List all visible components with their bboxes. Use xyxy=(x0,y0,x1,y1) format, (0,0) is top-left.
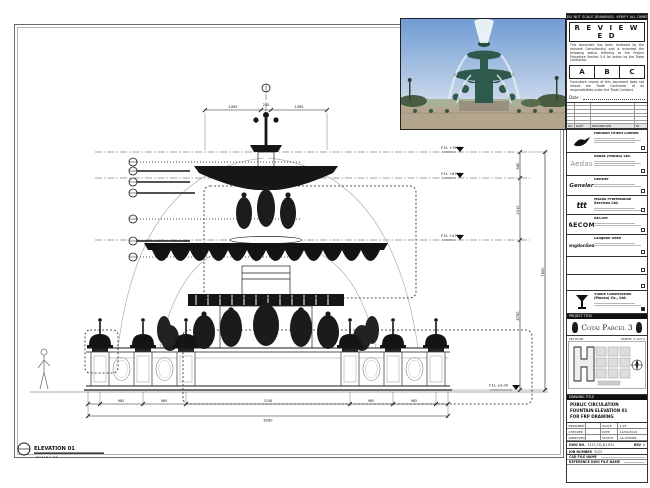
drawing-title-line3: FOR FRP DRAWING xyxy=(570,414,644,420)
consultant-address xyxy=(594,138,645,143)
dim-top-right: 1495 xyxy=(294,105,303,109)
revision-table: NO. DATE DESCRIPTION BY xyxy=(567,103,647,131)
level-7600: F.F.L +7600 xyxy=(441,146,461,150)
consultant-name: Gensler xyxy=(594,178,645,182)
rev-col-date: DATE xyxy=(575,124,591,128)
fountain-photo xyxy=(400,18,566,130)
status-label: STATUS xyxy=(601,435,619,441)
level-4750: F.F.L +4750 xyxy=(441,234,461,238)
approved-value: - xyxy=(586,435,600,441)
contractor-name: Yiukie Construction (Macau) Co., Ltd. xyxy=(594,293,645,301)
rev-col-no: NO. xyxy=(567,124,575,128)
dim-top-left: 1495 xyxy=(228,105,237,109)
aedas-logo: Aedas xyxy=(569,155,594,173)
consultant-box-langdon: LangdonSeah Langdon Seah xyxy=(567,235,647,257)
approval-checkbox[interactable] xyxy=(641,284,645,288)
consultant-address xyxy=(594,184,645,187)
consultant-name: AECOM xyxy=(594,217,645,221)
title-block: DO NOT SCALE DRAWINGS. VERIFY ALL DIMENS… xyxy=(566,13,648,483)
contractor-address xyxy=(594,303,645,306)
level-zero: F.F.L ±0.00 xyxy=(489,384,508,388)
grade-c-cell[interactable]: C xyxy=(620,66,644,78)
consultant-box-aedas: Aedas Aedas (Macau) Ltd. xyxy=(567,153,647,176)
reference-dwg-row: REFERENCE DWG FILE NAME xyxy=(567,460,647,465)
approval-checkbox[interactable] xyxy=(641,169,645,173)
job-number-label: JOB NUMBER xyxy=(569,450,592,454)
aecom-logo: AECOM xyxy=(569,217,594,232)
elevation-scale-note: SCALE 1:25 xyxy=(36,455,58,458)
level-6760: F.F.L +6760 xyxy=(441,172,461,176)
approval-checkbox[interactable] xyxy=(641,307,645,311)
elevation-label: ELEVATION 01 xyxy=(34,446,75,452)
consultant-box-gensler: Gensler Gensler xyxy=(567,176,647,196)
dim-bottom-2: 985 xyxy=(161,399,167,403)
fountain-structure xyxy=(144,112,388,351)
dim-right-3: 4750 xyxy=(516,311,520,321)
right-dimensions: 840 2010 4750 7600 xyxy=(452,150,548,392)
rev-col-desc: DESCRIPTION xyxy=(591,124,635,128)
elevation-title: ELEVATION 01 SCALE 1:25 xyxy=(18,443,104,458)
level-lines xyxy=(95,152,530,240)
dim-top-center: 240 xyxy=(263,103,271,107)
approval-checkbox[interactable] xyxy=(641,228,645,232)
dim-right-total: 7600 xyxy=(541,267,545,277)
drawing-sheet: 1495 240 1495 840 2010 4750 7600 F.F.L +… xyxy=(0,0,650,488)
review-grade-row: A B C xyxy=(569,65,645,79)
status-value: AS SHOWN xyxy=(618,435,647,441)
contractor-box-yiukie: Yiukie Construction (Macau) Co., Ltd. xyxy=(567,291,647,314)
reference-dwg-value-bar xyxy=(624,462,645,463)
project-title-banner: Cotai Parcel 3 xyxy=(567,319,647,336)
approval-table: DESIGNED - SCALE 1:25 CHECKED - DATE 12/… xyxy=(567,423,647,442)
review-stamp-title: R E V I E W E D xyxy=(569,22,645,42)
approval-checkbox[interactable] xyxy=(641,250,645,254)
consultant-box-empty-2 xyxy=(567,275,647,291)
consultant-name: Macau Professional Services Ltd. xyxy=(594,198,645,206)
key-plan: KEY PLAN PARCEL 3, LOT 2 xyxy=(567,336,647,395)
key-plan-map xyxy=(568,341,646,389)
mps-logo: ttt xyxy=(569,198,594,212)
consultant-box-empty-1 xyxy=(567,257,647,275)
approval-checkbox[interactable] xyxy=(641,268,645,272)
stamp-date-row: Date : xyxy=(569,95,645,100)
consultant-name: Aedas (Macau) Ltd. xyxy=(594,155,645,159)
human-scale-figure xyxy=(38,349,50,389)
bottom-dimensions: 985 985 3740 985 985 8280 xyxy=(86,392,450,423)
consultant-address xyxy=(594,208,645,211)
dim-right-2: 2010 xyxy=(516,205,520,215)
left-emblem-icon xyxy=(572,322,578,333)
review-stamp-body2: Consultant review of this document does … xyxy=(570,81,644,93)
consultant-box-handian: Handian Orient Limited xyxy=(567,130,647,153)
approval-checkbox[interactable] xyxy=(641,146,645,150)
fountain-photo-image xyxy=(401,19,565,129)
reference-dwg-label: REFERENCE DWG FILE NAME xyxy=(569,460,620,464)
dim-right-1: 840 xyxy=(516,162,520,170)
right-emblem-icon xyxy=(636,322,642,333)
consultant-address xyxy=(594,161,645,166)
rev-label: REV xyxy=(634,443,641,447)
stamp-date-field[interactable] xyxy=(583,95,645,100)
consultant-box-mps: ttt Macau Professional Services Ltd. xyxy=(567,196,647,215)
approval-checkbox[interactable] xyxy=(641,189,645,193)
grade-a-cell[interactable]: A xyxy=(570,66,595,78)
consultant-address xyxy=(594,243,645,246)
cad-file-value-bar xyxy=(601,457,645,458)
consultant-address xyxy=(594,223,645,226)
dim-bottom-total: 8280 xyxy=(264,419,273,423)
handian-logo-icon xyxy=(569,132,594,150)
level-markers: F.F.L +7600 F.F.L +6760 F.F.L +4750 F.F.… xyxy=(441,146,520,390)
revision-table-header: NO. DATE DESCRIPTION BY xyxy=(567,124,647,129)
consultant-name: Langdon Seah xyxy=(594,237,645,241)
gensler-logo: Gensler xyxy=(569,178,594,193)
dim-bottom-5: 985 xyxy=(411,399,417,403)
grade-b-cell[interactable]: B xyxy=(595,66,620,78)
rev-col-by: BY xyxy=(635,124,647,128)
approved-label: APPROVED xyxy=(567,435,586,441)
dim-bottom-3: 3740 xyxy=(264,399,272,403)
dim-bottom-4: 985 xyxy=(368,399,374,403)
dim-bottom-1: 985 xyxy=(118,399,124,403)
job-number-value: 3123 xyxy=(594,450,602,454)
review-stamp: R E V I E W E D This document has been r… xyxy=(567,20,647,103)
consultant-name: Handian Orient Limited xyxy=(594,132,645,136)
langdon-seah-logo: LangdonSeah xyxy=(569,237,594,254)
stamp-date-label: Date : xyxy=(569,95,581,100)
yiukie-logo-icon xyxy=(569,293,594,311)
approval-checkbox[interactable] xyxy=(641,208,645,212)
consultant-box-aecom: AECOM AECOM xyxy=(567,215,647,235)
cad-file-label: CAD FILE NAME xyxy=(569,455,597,459)
review-stamp-body1: This document has been reviewed by the r… xyxy=(570,44,644,63)
project-title: Cotai Parcel 3 xyxy=(581,323,632,332)
drawing-title: PUBLIC CIRCULATION FOUNTAIN ELEVATION 01… xyxy=(567,400,647,423)
dwg-no-label: DWG NO. xyxy=(569,443,585,447)
dwg-no-value: 3123_FD_B1-E01 xyxy=(587,443,614,447)
dwg-no-row: DWG NO. 3123_FD_B1-E01 REV 0 xyxy=(567,442,647,449)
rev-value: 0 xyxy=(643,443,645,447)
